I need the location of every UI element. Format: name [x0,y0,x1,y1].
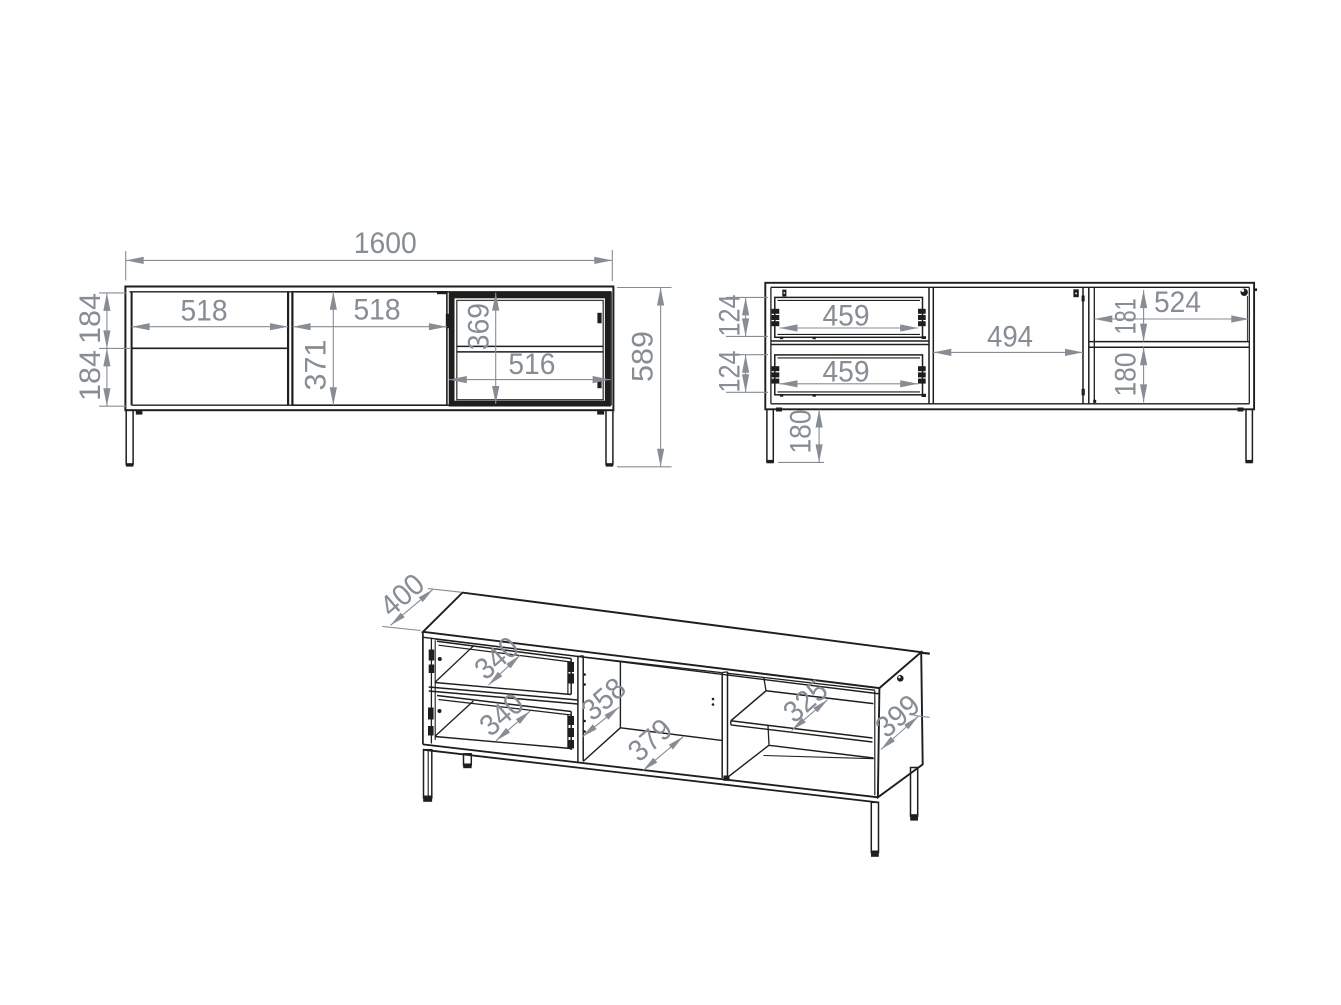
svg-text:369: 369 [463,303,496,350]
svg-text:184: 184 [74,350,107,401]
svg-text:524: 524 [1154,286,1201,319]
svg-text:371: 371 [300,340,333,391]
svg-text:518: 518 [354,294,401,327]
svg-text:1600: 1600 [354,227,417,260]
svg-text:124: 124 [713,351,746,393]
svg-text:184: 184 [74,293,107,344]
svg-text:589: 589 [627,331,660,382]
svg-text:379: 379 [622,713,679,769]
svg-text:516: 516 [508,348,555,381]
svg-text:459: 459 [823,356,870,389]
svg-text:518: 518 [181,295,228,328]
svg-text:494: 494 [987,321,1033,354]
svg-text:459: 459 [823,300,870,333]
svg-text:180: 180 [785,410,818,454]
svg-text:400: 400 [374,568,431,624]
svg-text:124: 124 [713,295,746,337]
svg-text:181: 181 [1109,298,1142,334]
svg-text:358: 358 [575,672,632,728]
svg-text:180: 180 [1109,353,1142,397]
